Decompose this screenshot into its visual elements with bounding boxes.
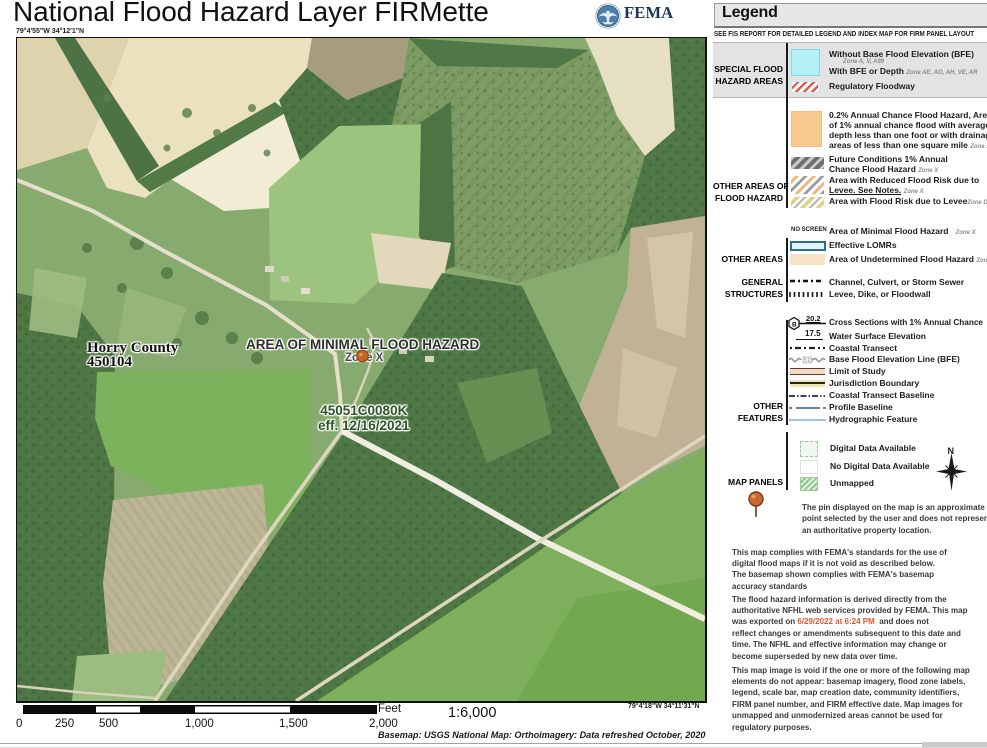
svg-text:N: N (948, 446, 955, 456)
svg-text:513: 513 (804, 358, 813, 364)
svg-text:B: B (792, 322, 797, 329)
